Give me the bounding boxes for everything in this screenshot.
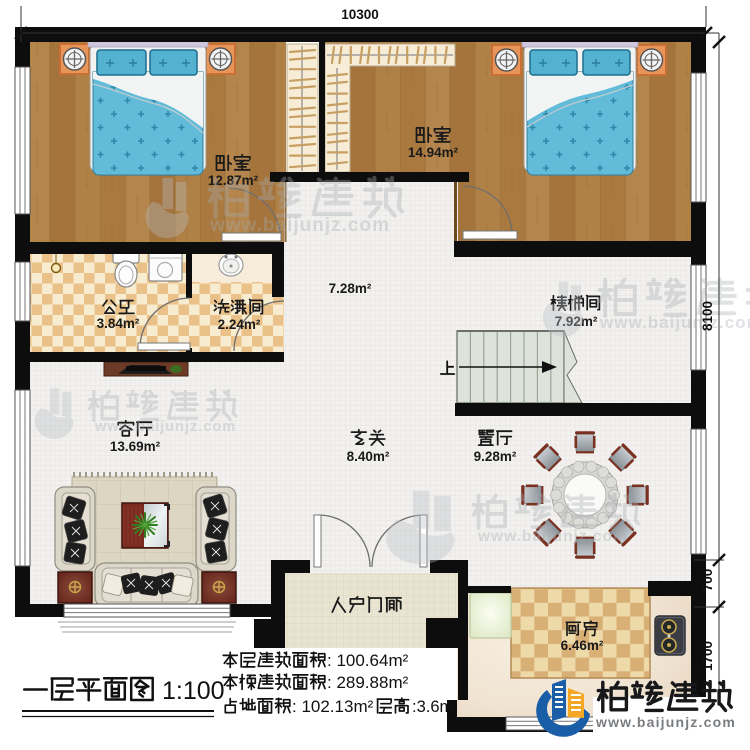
svg-text:www.baijunjz.com: www.baijunjz.com <box>599 313 750 332</box>
svg-text:: 289.88m²: : 289.88m² <box>327 673 409 692</box>
svg-text:13.69m²: 13.69m² <box>110 439 161 454</box>
svg-text:: 102.13m²: : 102.13m² <box>292 697 374 716</box>
svg-text:www.baijunjz.com: www.baijunjz.com <box>94 419 236 435</box>
svg-text:www.baijunjz.com: www.baijunjz.com <box>595 714 736 730</box>
svg-text:2.24m²: 2.24m² <box>218 317 261 332</box>
svg-text:8.40m²: 8.40m² <box>347 449 390 464</box>
svg-text:1:100: 1:100 <box>162 677 225 705</box>
svg-text::3.6m: :3.6m <box>412 698 453 716</box>
svg-text:1700: 1700 <box>700 641 715 671</box>
svg-text:www.baijunjz.com: www.baijunjz.com <box>209 215 390 236</box>
svg-text:10300: 10300 <box>341 7 379 22</box>
svg-text:9.28m²: 9.28m² <box>474 449 517 464</box>
svg-text:www.baijunjz.com: www.baijunjz.com <box>477 528 628 545</box>
svg-text:14.94m²: 14.94m² <box>408 145 459 160</box>
svg-text:8100: 8100 <box>700 301 715 331</box>
svg-text:700: 700 <box>700 569 715 592</box>
svg-text:6.46m²: 6.46m² <box>561 638 604 653</box>
svg-text:: 100.64m²: : 100.64m² <box>327 651 409 670</box>
svg-text:7.28m²: 7.28m² <box>329 281 372 296</box>
svg-text:3.84m²: 3.84m² <box>97 316 140 331</box>
